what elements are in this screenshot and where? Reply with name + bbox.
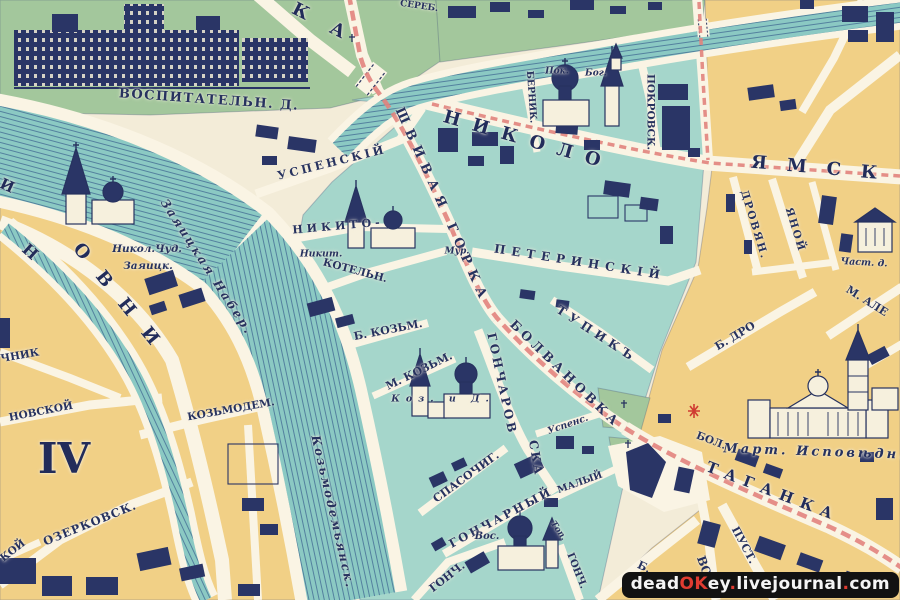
street-gonch-2: ГОНЧ. xyxy=(564,552,587,591)
street-tupik: ТУПИКЪ xyxy=(554,303,639,364)
label-uspens: Успенс. xyxy=(546,414,589,437)
street-chnik: ЧНИК xyxy=(0,347,40,364)
street-letter-n: Н xyxy=(19,241,41,263)
label-top: Топ. xyxy=(548,520,567,542)
church-martin-ispovednik-label: Март. Исповѣдн. xyxy=(723,442,900,461)
street-goncharny: ГОНЧАРНЫЙ xyxy=(447,486,554,550)
watermark-text: com xyxy=(849,574,890,594)
street-serebryanicheskaya: СЕРЕБ. xyxy=(399,0,438,14)
label-vospitatelny-dom: ВОСПИТАТЕЛЬН. Д. xyxy=(118,87,299,113)
street-yamskaya-letters: ЯМСК xyxy=(750,154,898,185)
street-m-alekseevskaya: М. АЛЕ xyxy=(844,284,890,318)
watermark-text: livejournal xyxy=(736,574,842,594)
street-nikito: НИКИТО- xyxy=(292,217,384,236)
street-bernikovsky: БЕРНИК. xyxy=(524,71,537,124)
street-goncharovskaya-2: СКА xyxy=(527,439,545,477)
street-m-kozmodemyansky: М. КОЗЬМ. xyxy=(384,350,454,392)
street-novskoy: НОВСКОЙ xyxy=(8,401,74,424)
watermark-text: OK xyxy=(680,574,708,594)
church-kozmy-i-damiana-label: Коз. и Д. xyxy=(391,394,495,404)
church-nikity-label: Никит. xyxy=(300,249,343,259)
street-goncharovskaya: ГОНЧАРОВ xyxy=(485,332,518,437)
street-pokrovsky: ПОКРОВСК. xyxy=(645,74,656,150)
church-nikola-zayaitsky-label-2: Заяицк. xyxy=(123,261,173,272)
street-b-kozmodemyansky: Б. КОЗЬМ. xyxy=(353,318,423,342)
street-spasochigasovsky: СПАСОЧИГ. xyxy=(431,450,501,505)
street-letter-partial: И xyxy=(0,176,17,196)
street-goncharnaya: ГОНЧ. xyxy=(427,560,466,594)
street-b-drovyanoy: Б. ДРО xyxy=(713,320,757,352)
church-nikola-zayaitsky-label-1: Никол.Чуд. xyxy=(112,244,182,255)
watermark-text: ey xyxy=(708,574,730,594)
street-drovyanoy-1: ДРОВЯН. xyxy=(738,189,769,261)
street-sadovnicheskaya-letters: ОВНИ xyxy=(69,240,174,364)
street-peterinsky: ПЕТЕРИНСКІЙ xyxy=(493,242,666,281)
street-kotelnichesky: КОТЕЛЬН. xyxy=(322,257,389,284)
label-chastny-dom: Част. д. xyxy=(840,257,888,269)
church-voskreseniya-label: Вос. xyxy=(475,532,500,542)
label-mur: Мур. xyxy=(445,248,470,257)
watermark-text: dead xyxy=(631,574,680,594)
street-pustaya: ПУСТ. xyxy=(730,525,759,566)
street-kozmodemyanskaya-nab: Козьмодемьянск. xyxy=(309,434,356,590)
map-canvas: ИНОВНИКАВОСПИТАТЕЛЬН. Д.СЕРЕБ.НИКОЛОЯМСК… xyxy=(0,0,900,600)
map-labels-layer: ИНОВНИКАВОСПИТАТЕЛЬН. Д.СЕРЕБ.НИКОЛОЯМСК… xyxy=(0,0,900,600)
watermark: deadOKey.livejournal.com xyxy=(622,572,899,598)
church-bogoroditsy-label: Бог. xyxy=(585,70,607,79)
street-kozmodemyanskaya: КОЗЬМОДЕМ. xyxy=(187,397,276,423)
street-ozerkovsky: ОЗЕРКОВСК. xyxy=(42,500,139,548)
street-uspensky: УСПЕНСКІЙ xyxy=(276,144,387,182)
street-taganka-letters: ТАГАНКА xyxy=(704,460,842,525)
church-pokrova-label: Пок. xyxy=(545,68,569,77)
street-solyanka-letters: КА xyxy=(289,0,371,54)
street-koy: КОЙ xyxy=(0,538,28,564)
district-number: IV xyxy=(38,438,90,480)
street-drovyanoy-2: ЯНОЙ xyxy=(783,206,807,253)
street-maly: МАЛЫЙ xyxy=(556,470,603,495)
